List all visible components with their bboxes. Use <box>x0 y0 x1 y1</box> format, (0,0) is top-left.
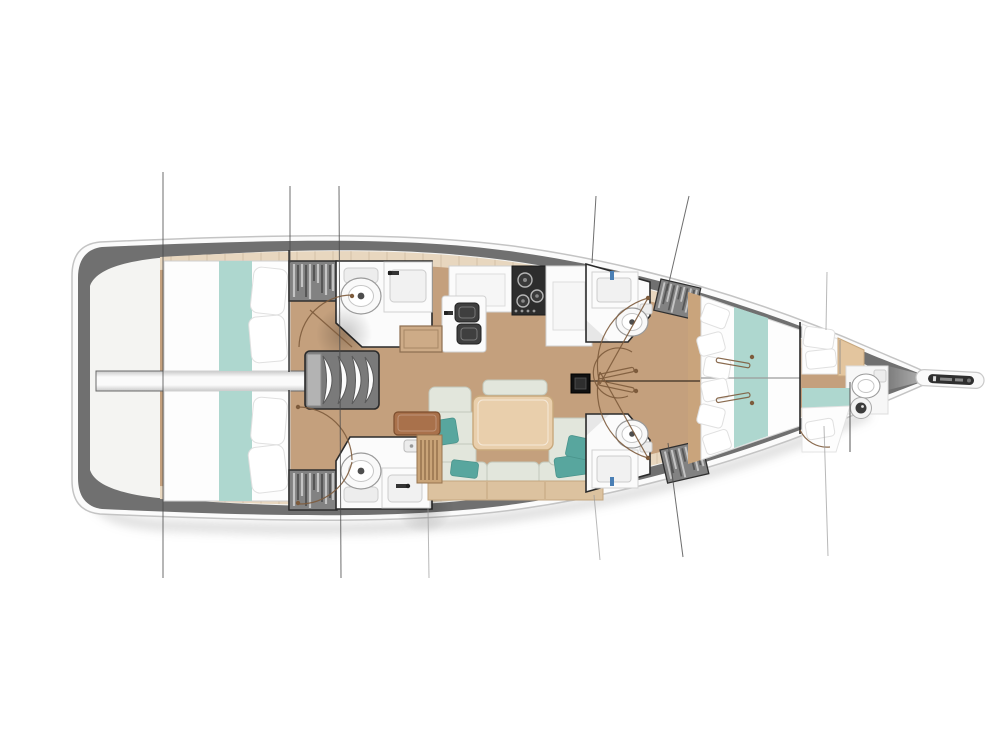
bed-runner <box>219 261 252 371</box>
companionway-stairs <box>305 351 379 409</box>
double-sink <box>442 296 486 352</box>
wardrobe-aft-port <box>289 261 337 301</box>
pillow <box>247 444 288 494</box>
deck-plan-svg <box>0 0 993 745</box>
sink <box>384 262 432 312</box>
sink <box>592 450 638 488</box>
nav-desk <box>417 435 442 483</box>
bed-runner <box>219 391 252 501</box>
aft-cabin-port <box>164 250 290 372</box>
mast-foot <box>571 374 590 393</box>
round-sink <box>851 398 872 419</box>
pillow <box>250 397 288 446</box>
engine-compartment <box>96 371 312 391</box>
toilet <box>341 278 381 314</box>
yacht-deck-plan <box>0 0 993 745</box>
faucet <box>610 271 614 280</box>
salon-table <box>473 396 553 450</box>
pillow <box>250 266 289 315</box>
aft-cabin-starboard <box>164 390 290 510</box>
floor-locker <box>400 326 442 352</box>
bowsprit <box>916 369 985 389</box>
nav-seat <box>394 412 440 435</box>
salon-rail <box>428 481 603 500</box>
stairs-platform <box>307 354 321 406</box>
bedding-runner <box>802 388 850 408</box>
toilet <box>341 453 381 489</box>
side-shelf <box>688 292 701 464</box>
stove <box>512 266 546 315</box>
throw-pillow <box>450 459 479 478</box>
sink <box>592 271 638 308</box>
faucet <box>610 477 614 486</box>
toilet <box>852 374 880 398</box>
pillow <box>248 315 288 364</box>
